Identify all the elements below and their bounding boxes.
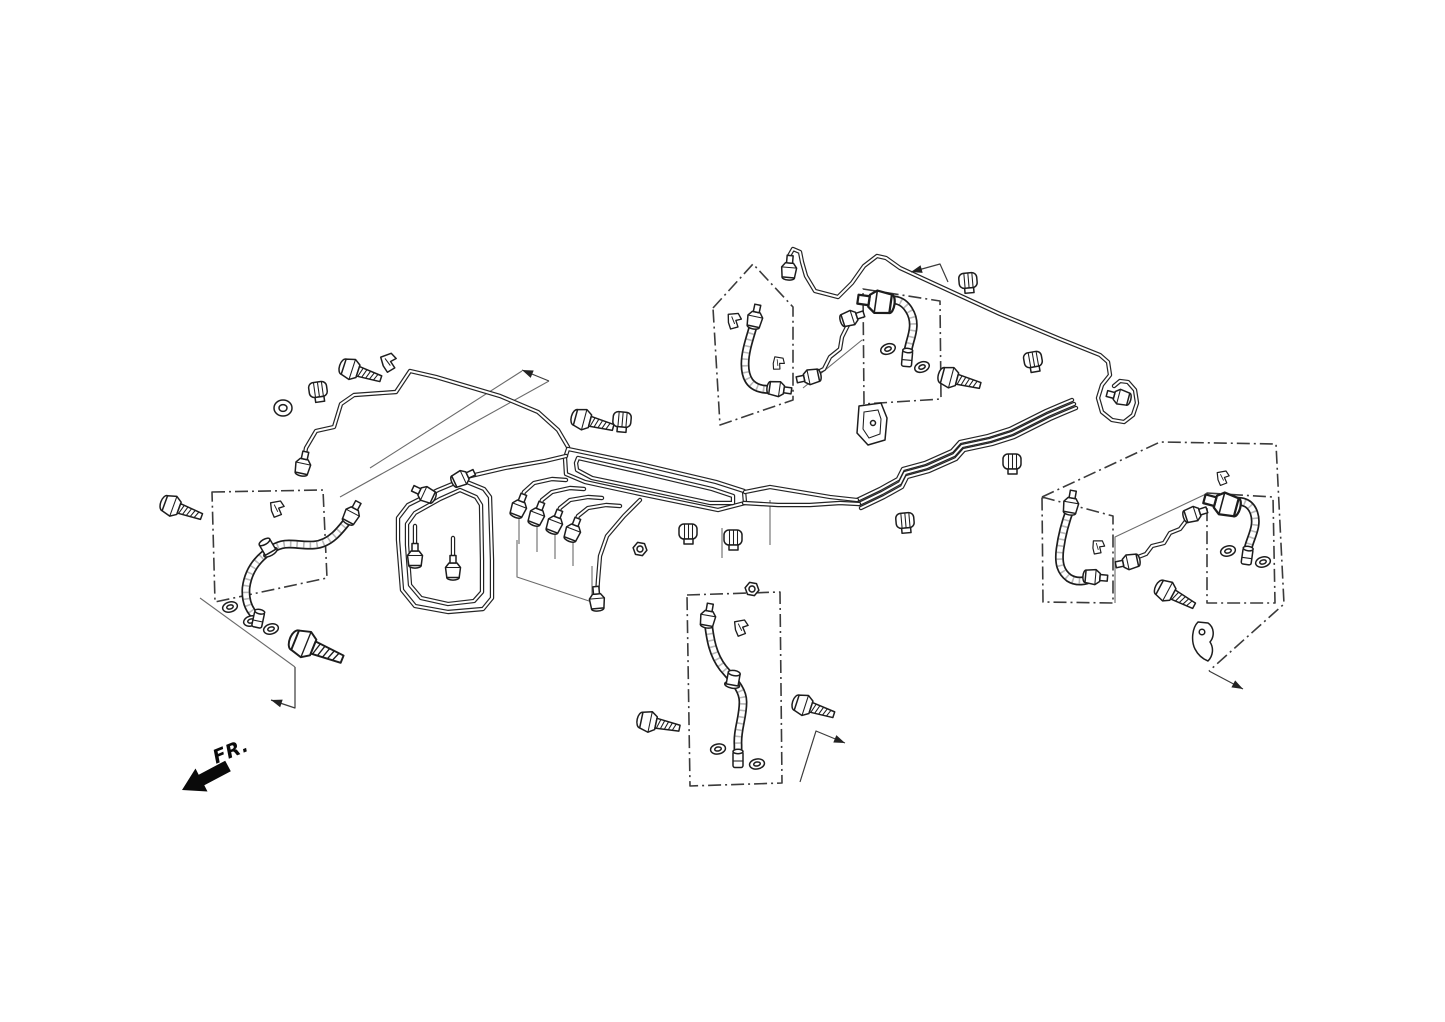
leader-arrow (1209, 671, 1243, 689)
part-fitting (588, 586, 605, 612)
part-washer (221, 600, 238, 614)
part-bolt (1151, 576, 1199, 615)
part-fitting (781, 255, 798, 281)
center-loop-exit-lower (744, 503, 859, 505)
pipe-core (303, 371, 568, 464)
part-washer (749, 758, 766, 770)
part-clip (380, 353, 398, 373)
part-hose-end (733, 749, 743, 767)
part-bracket-hook (1193, 622, 1214, 661)
pipe-core (812, 319, 850, 375)
arrowhead (833, 735, 845, 743)
part-fitting (1062, 489, 1081, 516)
part-fitting (446, 556, 461, 581)
part-fitting (745, 303, 765, 330)
pipe-core (859, 404, 1074, 504)
part-clamp (1003, 454, 1021, 474)
part-fitting (699, 602, 718, 629)
part-hose-end (1241, 546, 1253, 565)
part-hose-end (901, 348, 913, 367)
part-bolt (336, 355, 384, 388)
hose-core (246, 515, 352, 618)
part-fitting (508, 492, 531, 520)
part-clip (1091, 539, 1105, 555)
arrowhead (1231, 680, 1243, 689)
part-clamp (612, 411, 632, 432)
leader-arrow (522, 370, 549, 381)
center-rear-brake-hose (708, 620, 743, 758)
part-bracket-plate (857, 403, 887, 445)
part-washer (1219, 544, 1236, 558)
part-fitting (293, 450, 313, 477)
leader-line (370, 371, 522, 468)
arrowhead (911, 265, 923, 273)
part-clip (771, 355, 786, 372)
pipe-core (861, 408, 1076, 508)
pipe-outline (1130, 516, 1192, 560)
part-clip (727, 313, 742, 330)
leader-arrow (271, 667, 295, 708)
part-washer (913, 360, 931, 375)
left-loop-link-pipe (462, 456, 566, 478)
leader-arrow (800, 731, 845, 782)
part-fitting (408, 544, 423, 569)
part-clip (271, 501, 285, 517)
part-nut (632, 542, 648, 556)
rear-pipe-bundle-2 (859, 404, 1074, 504)
right-link-pipe (1130, 516, 1192, 560)
part-clamp (958, 272, 978, 293)
part-fitting (1114, 552, 1141, 572)
pipe-outline (573, 505, 620, 529)
arrowhead (271, 700, 283, 708)
part-fitting (766, 380, 792, 398)
part-clip (1217, 471, 1229, 485)
part-fitting (1105, 386, 1133, 407)
front-left-brake-hose (246, 515, 352, 618)
part-fitting (795, 367, 822, 387)
part-grommet (274, 400, 292, 416)
mid-link-pipe (812, 319, 850, 375)
part-washer (710, 743, 727, 755)
part-fitting (838, 307, 866, 329)
diagram-canvas: FR. (0, 0, 1445, 1022)
part-clip (735, 620, 749, 636)
leader-arrows-layer (271, 264, 1243, 782)
arrowhead (522, 370, 534, 378)
fr-indicator-layer: FR. (182, 734, 252, 791)
part-clamp (895, 512, 915, 533)
part-washer (1254, 555, 1271, 569)
part-bolt (936, 364, 983, 395)
part-nut (744, 582, 760, 596)
part-bolt (635, 709, 682, 739)
part-fitting (562, 516, 585, 544)
part-fitting (544, 508, 567, 536)
part-bolt (157, 492, 205, 527)
part-banjo-bolt (285, 625, 347, 671)
right-inner-hose-group-box (1042, 497, 1113, 603)
center-loop-exit-upper (745, 487, 857, 500)
leader-line (340, 381, 549, 497)
part-bolt (789, 691, 837, 724)
part-clamp (724, 530, 742, 550)
part-clamp (308, 381, 329, 403)
part-fitting (1082, 569, 1108, 586)
master-cylinder-pipe-4 (573, 505, 620, 529)
part-washer (262, 622, 279, 636)
part-bolt (569, 406, 616, 437)
fr-label: FR. (210, 734, 252, 768)
front-left-brake-pipe (303, 371, 568, 464)
mid-left-hose-group-box (713, 264, 793, 425)
pipe-outline (812, 319, 850, 375)
part-washer (879, 342, 897, 357)
brake-lines-parts-diagram: FR. (0, 0, 1445, 1022)
part-clamp (1023, 351, 1044, 374)
part-fitting (1181, 503, 1209, 525)
part-fitting (526, 500, 549, 528)
rear-pipe-bundle-3 (861, 408, 1076, 508)
mid-left-brake-hose (745, 320, 778, 389)
part-clamp (679, 524, 697, 544)
pipe-core (462, 456, 566, 478)
pipe-outline (303, 371, 568, 464)
